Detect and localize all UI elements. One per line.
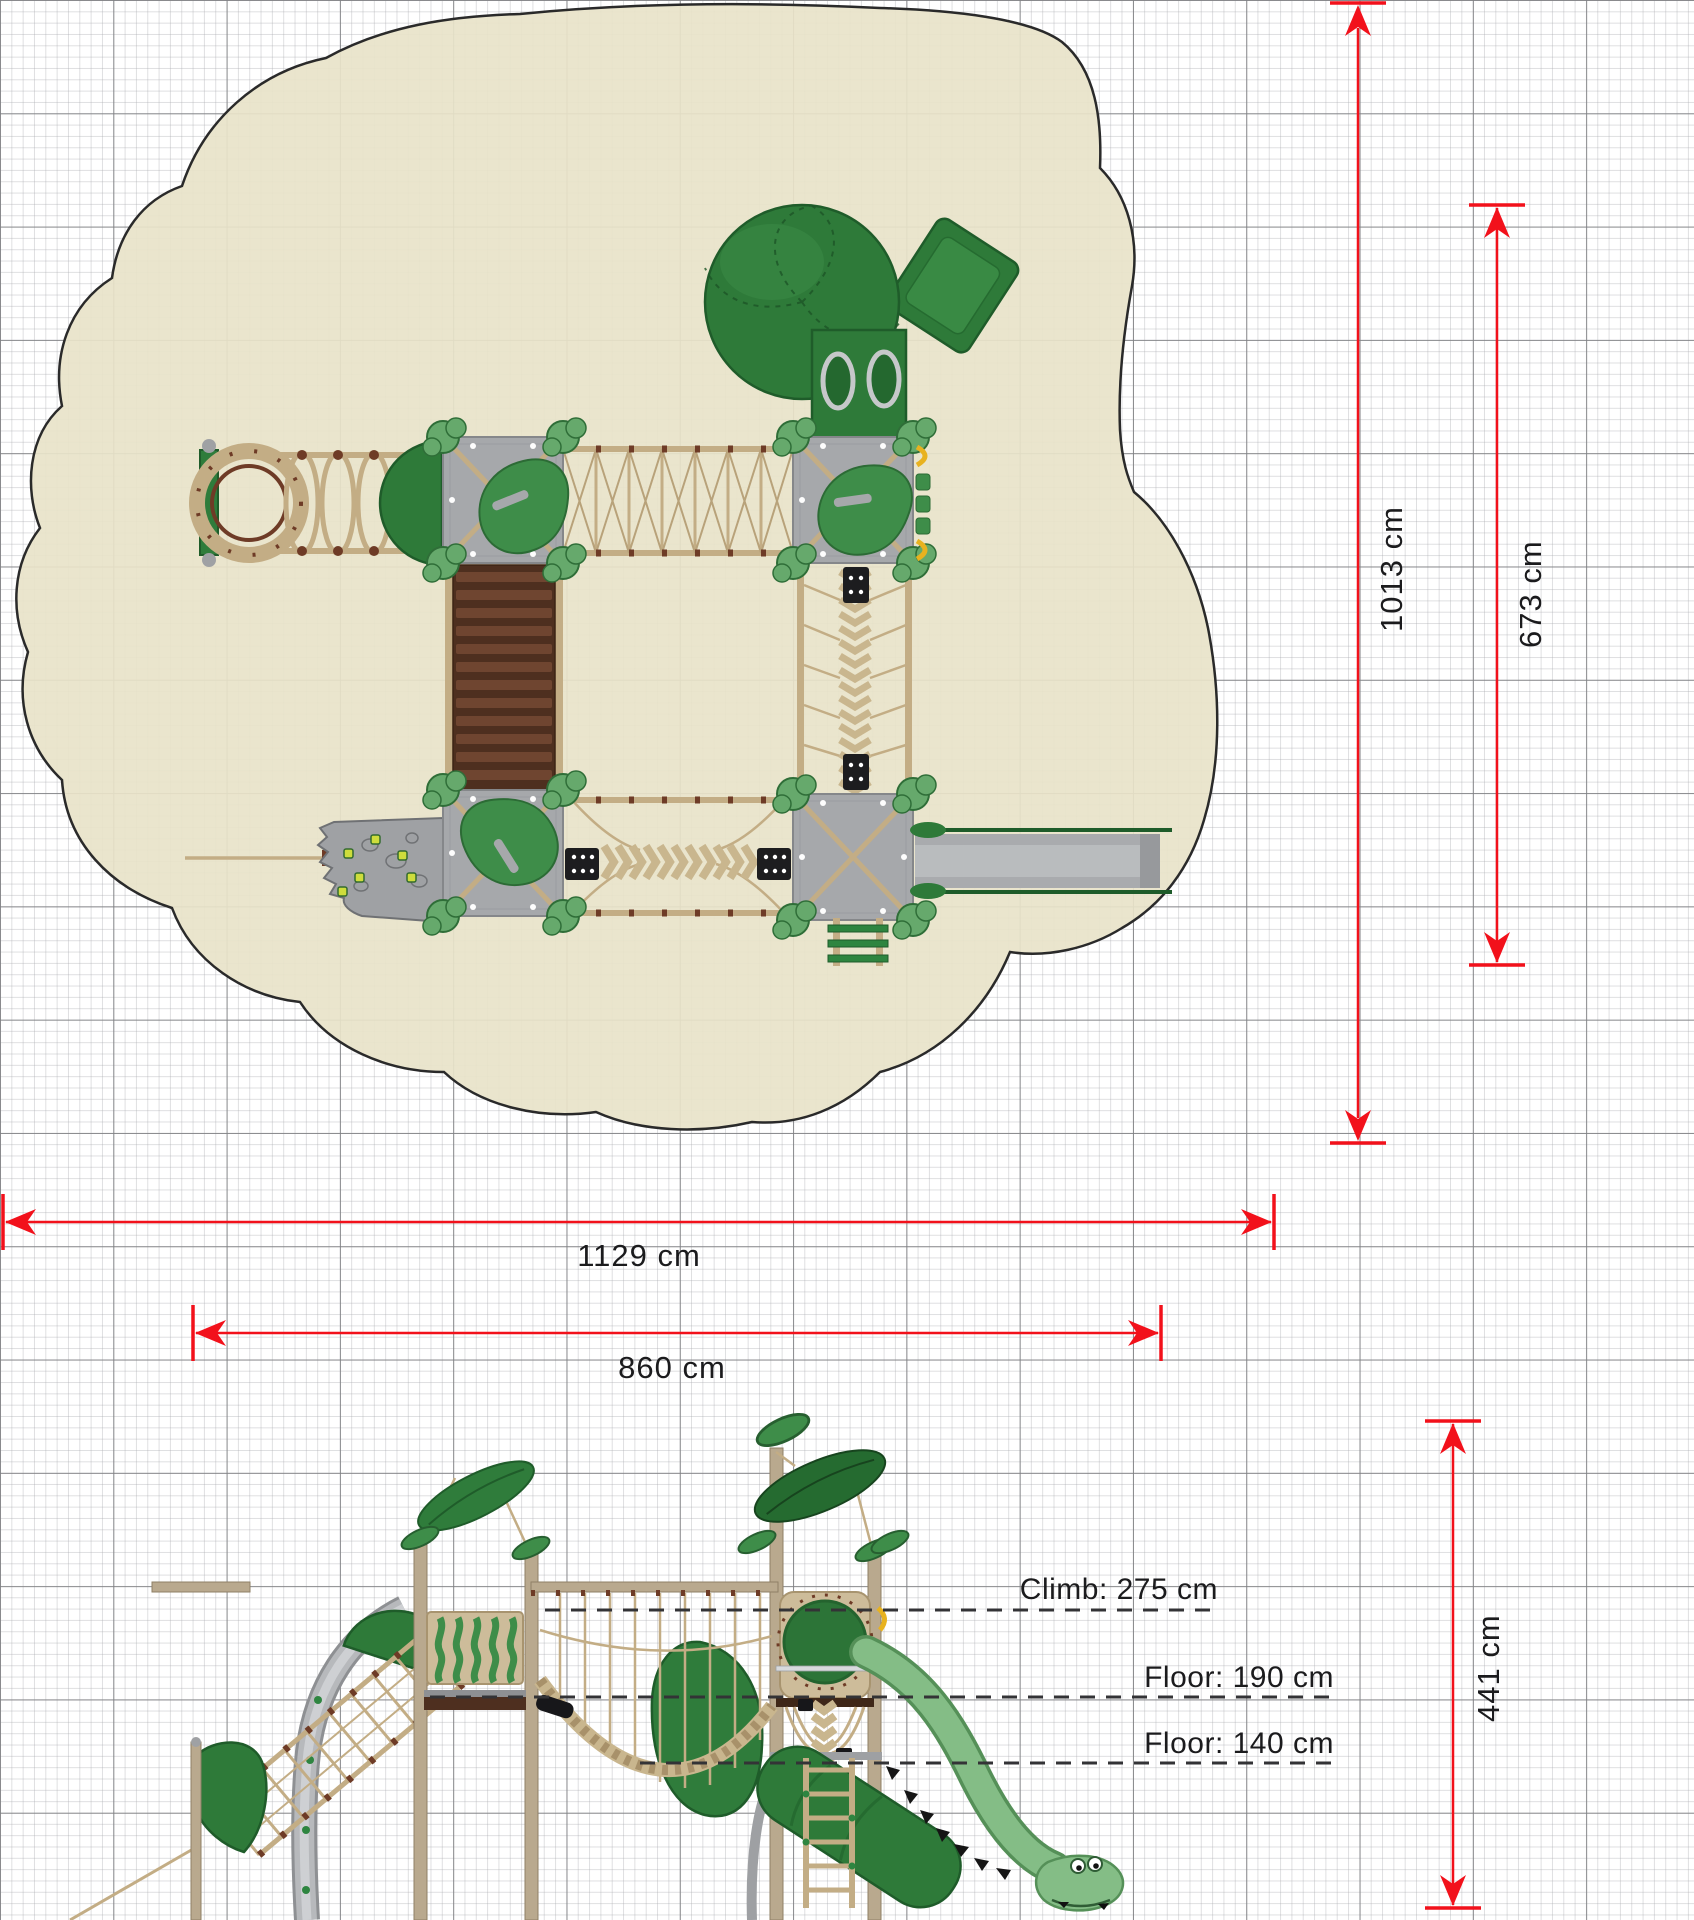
dim-label-height-inner: 673 cm bbox=[1513, 540, 1548, 648]
safety-surface-area bbox=[16, 4, 1217, 1129]
tube-window bbox=[823, 354, 853, 408]
elev-tower bbox=[770, 1592, 885, 1763]
dim-label-width-total: 1129 cm bbox=[577, 1238, 701, 1273]
elev-net-bridge bbox=[531, 1593, 778, 1816]
plan-stairs bbox=[445, 565, 563, 790]
dim-label-width-inner: 860 cm bbox=[618, 1350, 726, 1385]
plan-access-ladder bbox=[828, 918, 888, 966]
elevation-view bbox=[70, 1408, 1123, 1920]
drawing-canvas: 1013 cm 673 cm 1129 cm 860 cm 441 cm bbox=[0, 0, 1694, 1920]
elev-rail-mid bbox=[531, 1582, 778, 1592]
technical-drawing: 1013 cm 673 cm 1129 cm 860 cm 441 cm bbox=[0, 0, 1694, 1920]
dim-label-height-total: 1013 cm bbox=[1374, 506, 1409, 632]
dimension-height-inner: 673 cm bbox=[1469, 205, 1548, 965]
plan-deck-d bbox=[773, 775, 936, 939]
dim-label-side-height: 441 cm bbox=[1471, 1614, 1506, 1722]
dimension-height-total: 1013 cm bbox=[1330, 3, 1409, 1143]
ann-label-climb: Climb: 275 cm bbox=[1020, 1573, 1218, 1606]
dimension-side-height: 441 cm bbox=[1425, 1421, 1506, 1908]
ann-label-floor-lower: Floor: 140 cm bbox=[1144, 1727, 1334, 1760]
ann-label-floor-upper: Floor: 190 cm bbox=[1144, 1661, 1334, 1694]
dimension-width-inner: 860 cm bbox=[193, 1305, 1161, 1385]
elev-rail-left bbox=[152, 1582, 250, 1592]
elev-leaf-canopies bbox=[398, 1408, 911, 1566]
tube-window bbox=[869, 352, 899, 406]
elev-climb-panel bbox=[424, 1612, 526, 1710]
dimension-width-total: 1129 cm bbox=[3, 1194, 1274, 1273]
elev-small-tube bbox=[196, 1742, 266, 1852]
